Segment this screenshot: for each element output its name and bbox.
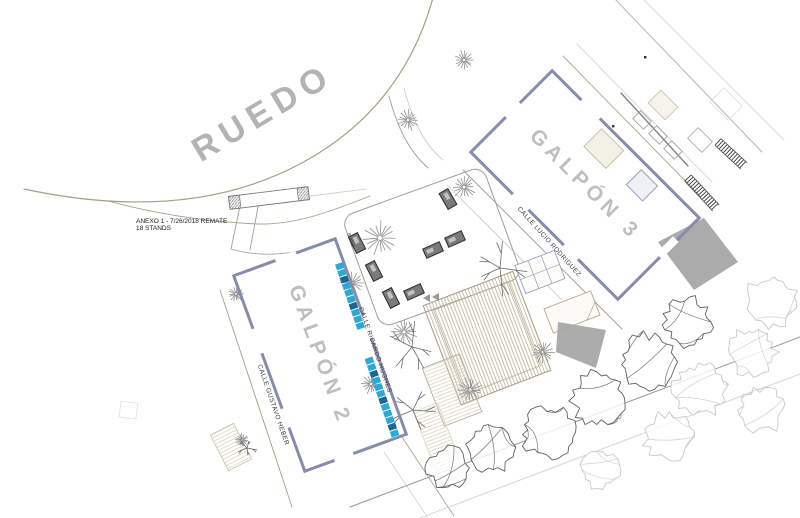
service-room <box>626 169 659 202</box>
stage-area <box>583 128 624 169</box>
point-marks <box>612 56 646 127</box>
building-label: GALPÓN 2 <box>284 282 357 429</box>
annotation-line-1: ANEXO 1 - 7/26/2018 REMATE <box>136 218 227 225</box>
site-plan: GALPÓN 3 GALPÓN 2 RUEDO CALLE LUCIO RODR… <box>0 0 800 518</box>
plan-linework <box>0 0 800 518</box>
hatched-stair-strips <box>685 139 747 211</box>
annotation-line-2: 18 STANDS <box>136 225 227 232</box>
outbuildings-cluster <box>633 88 742 159</box>
grandstand <box>229 187 310 210</box>
annotation-text: ANEXO 1 - 7/26/2018 REMATE 18 STANDS <box>136 218 227 233</box>
